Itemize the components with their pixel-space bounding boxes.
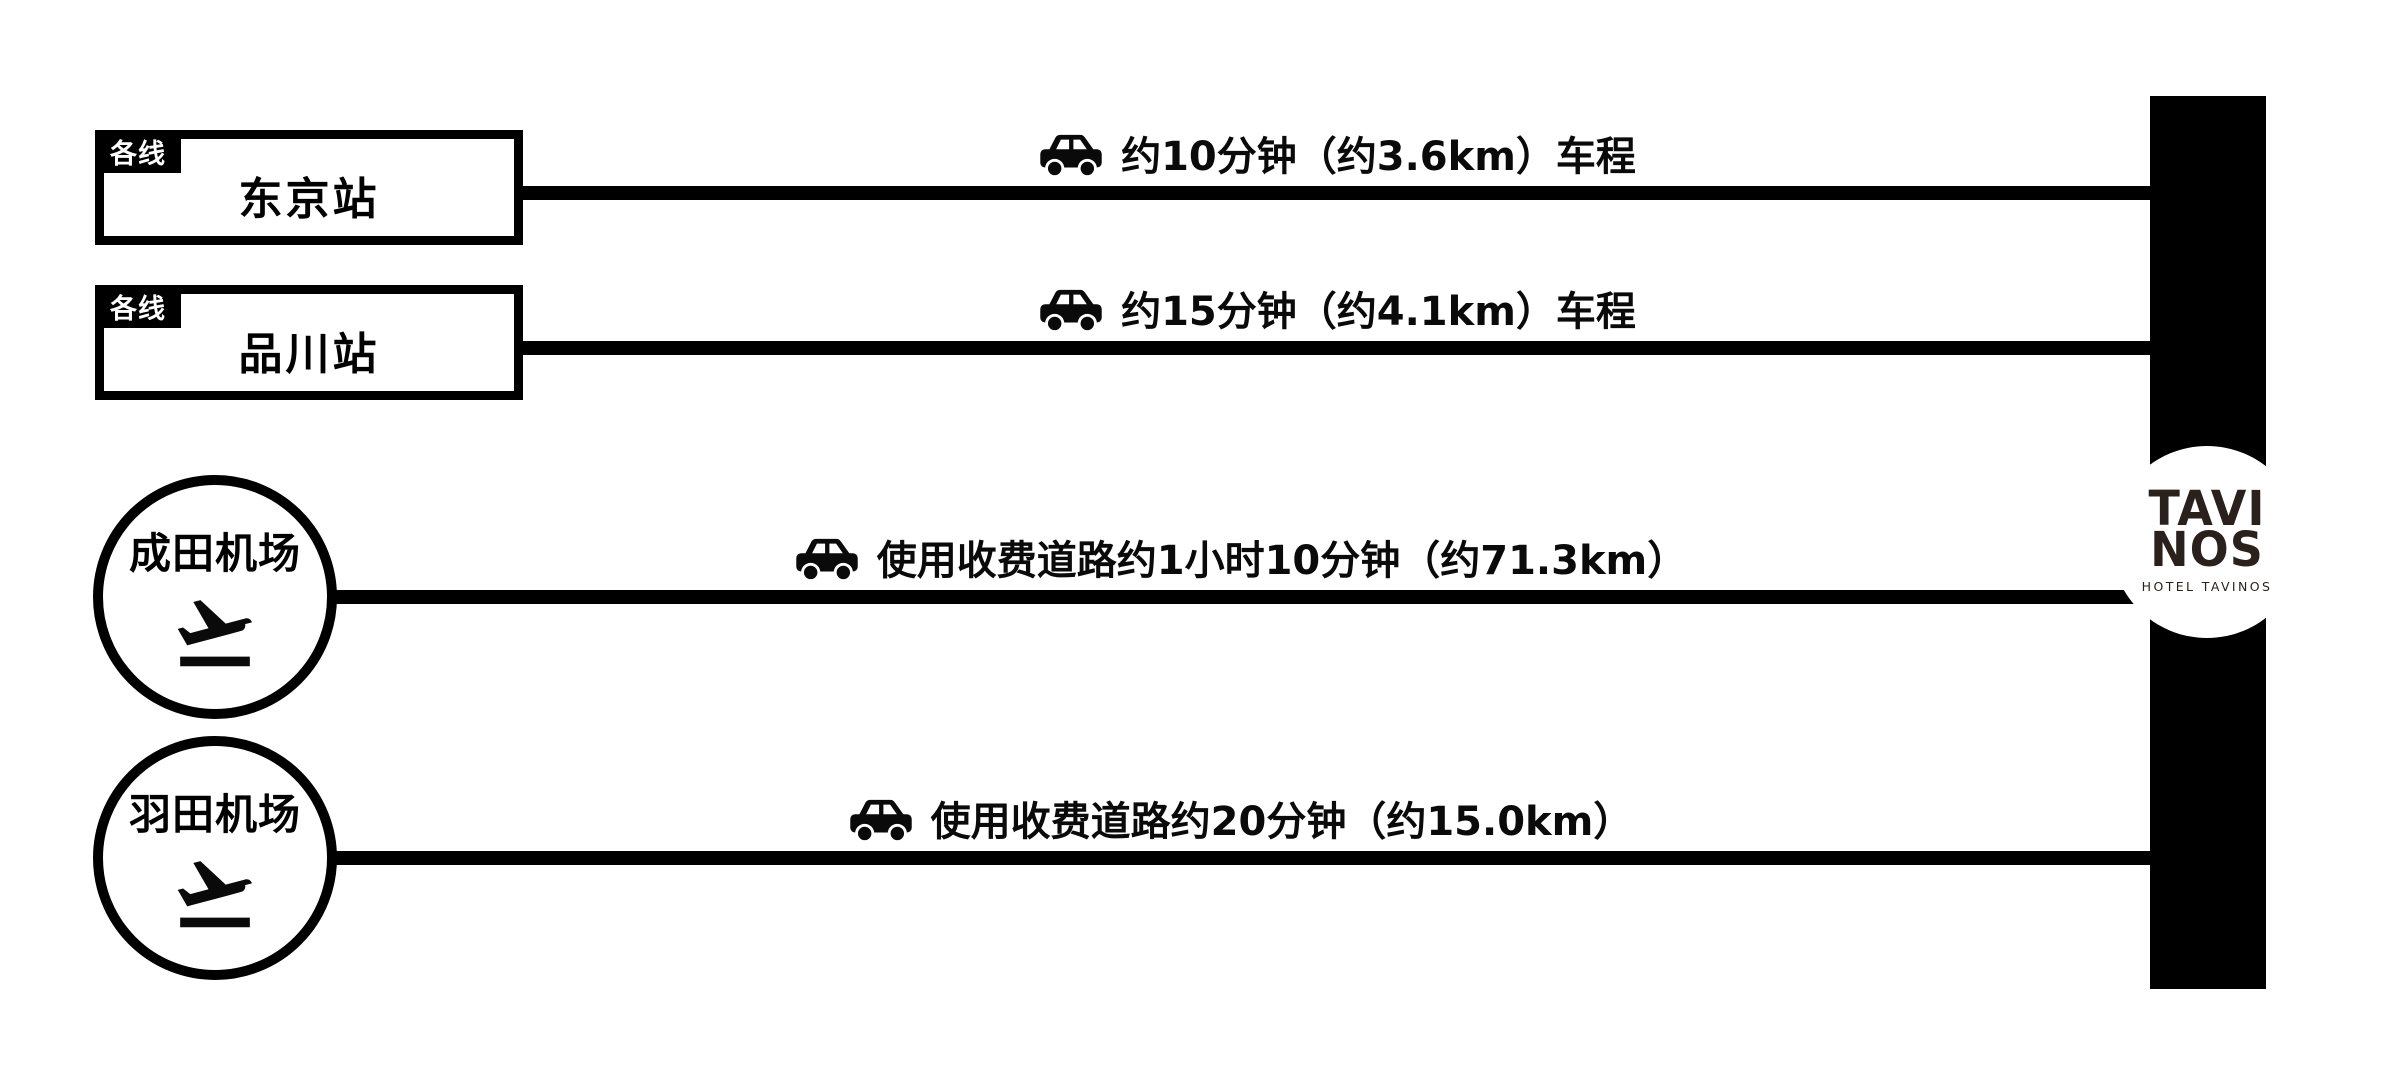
route-line-narita <box>320 590 2159 604</box>
station-name-shinagawa: 品川站 <box>239 318 380 382</box>
station-lines-tag-text: 各线 <box>110 287 166 326</box>
route-label-text: 约15分钟（约4.1km）车程 <box>1121 279 1636 337</box>
hotel-logo-badge: TAVI NOS HOTEL TAVINOS <box>2111 446 2303 638</box>
route-label-haneda: 使用收费道路约20分钟（约15.0km） <box>330 789 2150 847</box>
station-box-tokyo: 各线 东京站 <box>95 130 523 245</box>
car-icon <box>1037 131 1105 179</box>
route-label-shinagawa: 约15分钟（约4.1km）车程 <box>523 279 2150 337</box>
tavinos-wordmark: TAVI NOS <box>2148 488 2265 569</box>
airport-name-haneda: 羽田机场 <box>129 781 301 842</box>
hotel-access-diagram: 约10分钟（约3.6km）车程 约15分钟（约4.1km）车程 使用收费道路约1… <box>0 0 2400 1086</box>
station-lines-tag-text: 各线 <box>110 132 166 171</box>
hotel-logo-subtitle: HOTEL TAVINOS <box>2142 579 2273 594</box>
route-label-tokyo: 约10分钟（约3.6km）车程 <box>523 124 2150 182</box>
airport-circle-haneda: 羽田机场 <box>93 736 337 980</box>
route-line-tokyo <box>519 186 2159 200</box>
route-line-shinagawa <box>519 341 2159 355</box>
car-icon <box>793 535 861 583</box>
route-line-haneda <box>320 851 2159 865</box>
route-label-text: 使用收费道路约1小时10分钟（约71.3km） <box>877 528 1687 586</box>
car-icon <box>847 796 915 844</box>
car-icon <box>1037 286 1105 334</box>
route-label-narita: 使用收费道路约1小时10分钟（约71.3km） <box>330 528 2150 586</box>
station-box-shinagawa: 各线 品川站 <box>95 285 523 400</box>
route-label-text: 约10分钟（约3.6km）车程 <box>1121 124 1636 182</box>
airport-circle-narita: 成田机场 <box>93 475 337 719</box>
airplane-takeoff-icon <box>171 848 259 936</box>
station-lines-tag: 各线 <box>95 285 181 328</box>
route-label-text: 使用收费道路约20分钟（约15.0km） <box>931 789 1634 847</box>
airport-name-narita: 成田机场 <box>129 520 301 581</box>
station-name-tokyo: 东京站 <box>239 163 380 227</box>
station-lines-tag: 各线 <box>95 130 181 173</box>
wordmark-line2: NOS <box>2148 529 2265 570</box>
airplane-takeoff-icon <box>171 587 259 675</box>
